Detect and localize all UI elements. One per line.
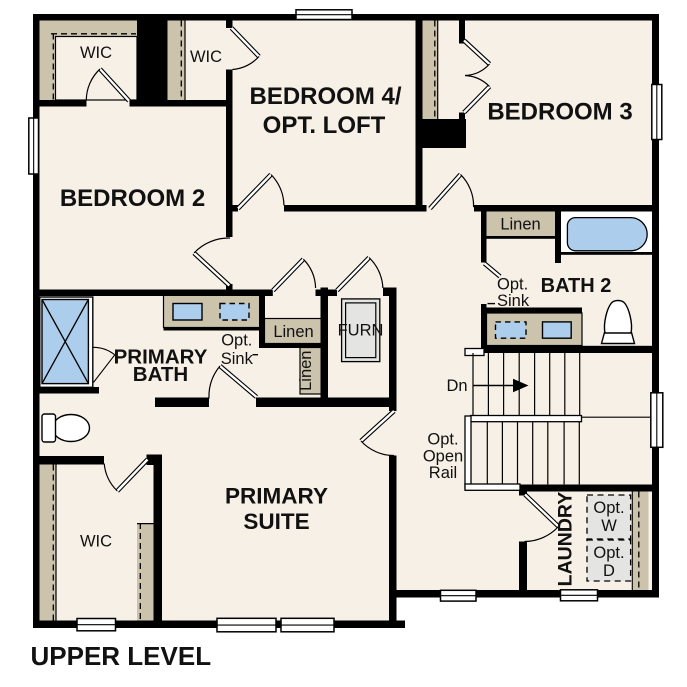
svg-text:BEDROOM 3: BEDROOM 3 xyxy=(487,99,632,126)
svg-text:D: D xyxy=(603,562,615,580)
svg-text:Rail: Rail xyxy=(429,464,457,482)
svg-text:Opt.: Opt. xyxy=(221,332,252,350)
svg-text:Opt.: Opt. xyxy=(593,544,624,562)
svg-text:WIC: WIC xyxy=(80,533,112,551)
svg-text:Opt.: Opt. xyxy=(593,499,624,517)
svg-text:SUITE: SUITE xyxy=(243,509,309,534)
svg-text:Linen: Linen xyxy=(500,216,540,234)
svg-text:Open: Open xyxy=(423,448,463,466)
svg-text:UPPER LEVEL: UPPER LEVEL xyxy=(31,641,212,671)
svg-text:PRIMARY: PRIMARY xyxy=(225,484,328,509)
svg-text:Opt.: Opt. xyxy=(427,431,458,449)
svg-text:OPT. LOFT: OPT. LOFT xyxy=(263,112,386,139)
svg-text:W: W xyxy=(601,517,617,535)
svg-text:BATH: BATH xyxy=(133,363,188,386)
svg-text:WIC: WIC xyxy=(80,44,112,62)
svg-text:Linen: Linen xyxy=(273,323,313,341)
svg-text:FURN: FURN xyxy=(338,322,384,340)
svg-text:BEDROOM 2: BEDROOM 2 xyxy=(60,185,205,212)
svg-text:Opt.: Opt. xyxy=(497,276,528,294)
svg-text:Linen: Linen xyxy=(297,351,315,391)
svg-text:BEDROOM 4/: BEDROOM 4/ xyxy=(249,83,401,110)
svg-text:Sink: Sink xyxy=(497,292,530,310)
svg-text:Dn: Dn xyxy=(446,377,467,395)
svg-text:BATH 2: BATH 2 xyxy=(541,275,612,297)
svg-text:LAUNDRY: LAUNDRY xyxy=(555,492,577,587)
svg-text:Sink: Sink xyxy=(221,350,254,368)
svg-text:WIC: WIC xyxy=(190,48,222,66)
